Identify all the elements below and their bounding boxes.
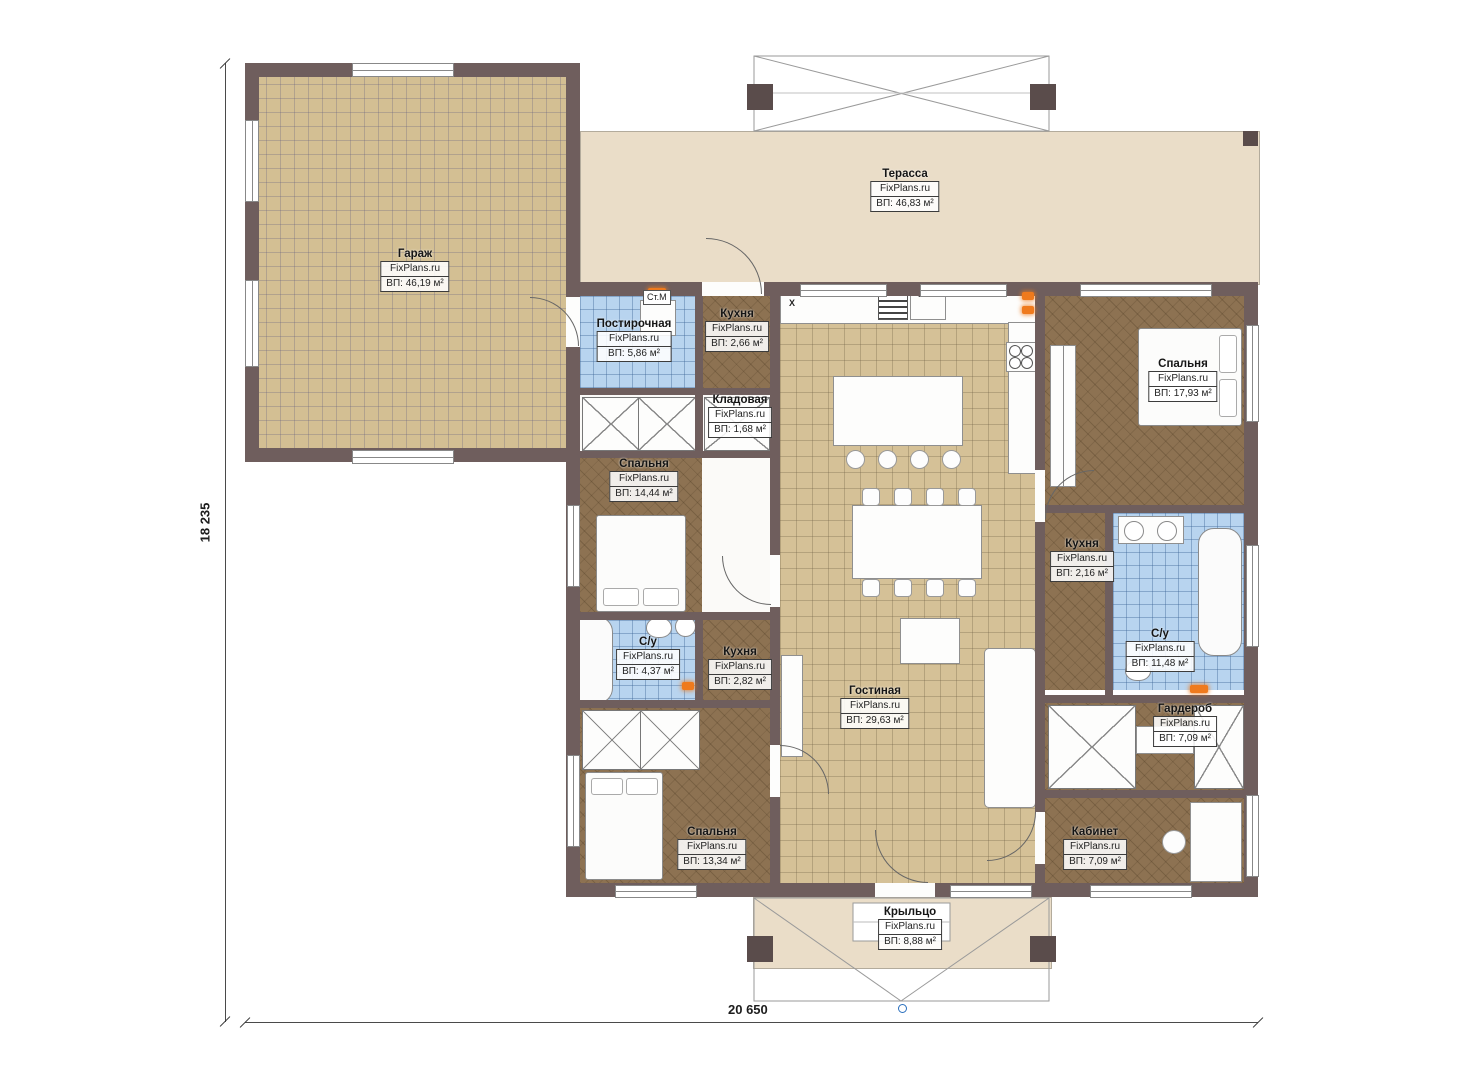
porch-column [1030,936,1056,962]
room-name: Постирочная [597,318,672,330]
room-watermark: FixPlans.ru [1153,716,1217,732]
dining-chair [926,579,944,597]
room-area: ВП: 2,16 м² [1050,567,1114,582]
dining-chair [958,488,976,506]
room-name: Гардероб [1153,703,1217,715]
bedroom2-wardrobe [1050,345,1076,487]
bar-stool [942,450,961,469]
room-watermark: FixPlans.ru [1148,371,1217,387]
room-area: ВП: 7,09 м² [1063,855,1127,870]
room-name: Спальня [609,458,678,470]
dining-chair [894,579,912,597]
pillow [1219,379,1237,417]
room-name: Кабинет [1063,826,1127,838]
dim-node [898,1004,907,1013]
vent-tag: X [786,297,798,310]
room-label-storage: Кладовая FixPlans.ru ВП: 1,68 м² [708,394,772,438]
dimension-height-label: 18 235 [197,503,212,543]
coffee-table [900,618,960,664]
door-gap [1035,470,1045,522]
bed-bedroom1 [596,515,686,612]
dining-chair [862,579,880,597]
room-label-bath1: С/у FixPlans.ru ВП: 4,37 м² [616,636,680,680]
garage-window-left [245,280,259,367]
kitchen-sink [910,293,946,320]
basin-bowl [1157,521,1177,541]
dining-chair [958,579,976,597]
dining-chair [894,488,912,506]
wall-right-divider [1035,296,1045,883]
room-label-kitchen-small: Кухня FixPlans.ru ВП: 2,82 м² [708,646,772,690]
toilet1 [646,617,672,638]
door-gap [770,745,780,797]
room-area: ВП: 46,83 м² [870,197,939,212]
window [615,885,697,898]
tv-stand [781,655,803,757]
pillow [603,588,639,606]
wall-wardrobe-office [1045,790,1244,798]
window [1246,325,1259,422]
room-name: Кладовая [708,394,772,406]
dining-chair [862,488,880,506]
wall-laundry-pantry [695,296,703,458]
room-label-office: Кабинет FixPlans.ru ВП: 7,09 м² [1063,826,1127,870]
room-label-bedroom1: Спальня FixPlans.ru ВП: 14,44 м² [609,458,678,502]
room-label-porch: Крыльцо FixPlans.ru ВП: 8,88 м² [878,906,942,950]
room-name: Кухня [708,646,772,658]
garage-wall-right [566,63,580,462]
wardrobe-unit [1048,705,1136,789]
porch-door-gap [875,883,935,897]
room-area: ВП: 11,48 м² [1126,657,1195,672]
pillow [1219,335,1237,373]
dimension-line-horizontal [245,1022,1258,1023]
room-label-bedroom2: Спальня FixPlans.ru ВП: 17,93 м² [1148,358,1217,402]
room-name: Терасса [870,168,939,180]
room-label-garage: Гараж FixPlans.ru ВП: 46,19 м² [380,248,449,292]
washing-machine-tag: Ст.М [643,290,671,305]
room-watermark: FixPlans.ru [708,407,772,423]
window [1090,885,1192,898]
window [1246,795,1259,877]
window [800,284,887,297]
radiator [1190,685,1208,693]
room-watermark: FixPlans.ru [1050,551,1114,567]
dimension-line-vertical [225,63,226,1022]
room-area: ВП: 46,19 м² [380,277,449,292]
kitchen-island [833,376,963,446]
room-label-terrace: Терасса FixPlans.ru ВП: 46,83 м² [870,168,939,212]
garage-window-left [245,120,259,202]
room-name: Спальня [1148,358,1217,370]
room-area: ВП: 4,37 м² [616,665,680,680]
room-label-bath2: С/у FixPlans.ru ВП: 11,48 м² [1126,628,1195,672]
room-area: ВП: 17,93 м² [1148,387,1217,402]
terrace-column [1030,84,1056,110]
terrace-corner-column [1243,131,1258,146]
pillow [626,778,658,795]
pillow [591,778,623,795]
room-watermark: FixPlans.ru [677,839,746,855]
dishwasher [878,293,908,320]
room-watermark: FixPlans.ru [609,471,678,487]
room-area: ВП: 2,82 м² [708,675,772,690]
room-label-bedroom3: Спальня FixPlans.ru ВП: 13,34 м² [677,826,746,870]
room-watermark: FixPlans.ru [878,919,942,935]
wall-bath-kitchen3 [695,620,703,708]
bed-bedroom3 [585,772,663,880]
bedroom3-wardrobe [640,710,700,770]
room-area: ВП: 2,66 м² [705,337,769,352]
room-watermark: FixPlans.ru [870,181,939,197]
room-area: ВП: 8,88 м² [878,935,942,950]
room-label-kitchen-right: Кухня FixPlans.ru ВП: 2,16 м² [1050,538,1114,582]
room-watermark: FixPlans.ru [1126,641,1195,657]
dining-chair [926,488,944,506]
bedroom3-wardrobe [582,710,642,770]
hall-wardrobe [638,397,696,451]
garage-window-bottom [352,450,454,464]
dimension-width-label: 20 650 [728,1002,768,1017]
room-watermark: FixPlans.ru [380,261,449,277]
wall-bedroom1-bath [580,612,770,620]
room-area: ВП: 13,34 м² [677,855,746,870]
room-label-wardrobe: Гардероб FixPlans.ru ВП: 7,09 м² [1153,703,1217,747]
door-gap [770,555,780,607]
room-watermark: FixPlans.ru [1063,839,1127,855]
dining-table [852,505,982,579]
room-watermark: FixPlans.ru [597,331,672,347]
radiator [682,682,694,690]
room-watermark: FixPlans.ru [705,321,769,337]
room-name: Крыльцо [878,906,942,918]
window [1246,545,1259,647]
floor-plan-canvas: Ст.М X Гараж FixPlans.ru ВП: 46,19 м² Те… [0,0,1474,1080]
room-watermark: FixPlans.ru [616,649,680,665]
room-label-living: Гостиная FixPlans.ru ВП: 29,63 м² [840,685,909,729]
room-name: Кухня [705,308,769,320]
room-watermark: FixPlans.ru [708,659,772,675]
hall-wardrobe [582,397,640,451]
burner-icon [1009,345,1021,357]
room-area: ВП: 29,63 м² [840,714,909,729]
burner-icon [1021,345,1033,357]
room-name: С/у [616,636,680,648]
radiator [1022,292,1034,300]
room-watermark: FixPlans.ru [840,698,909,714]
terrace-canopy-roof [753,55,1050,132]
room-name: С/у [1126,628,1195,640]
pillow [643,588,679,606]
double-washbasin [1118,516,1184,544]
bar-stool [910,450,929,469]
office-chair [1162,830,1186,854]
garage-window-top [352,63,454,77]
burner-icon [1009,357,1021,369]
room-name: Кухня [1050,538,1114,550]
bar-stool [846,450,865,469]
wall-hall-bottom [580,451,770,458]
bathtub2 [1198,528,1242,656]
burner-icon [1021,357,1033,369]
door-gap [1035,812,1045,864]
room-name: Гостиная [840,685,909,697]
wall-bath-bedroom3 [580,700,770,708]
radiator [1022,306,1034,314]
office-desk [1190,802,1242,882]
sofa [984,648,1036,808]
room-area: ВП: 5,86 м² [597,347,672,362]
window [950,885,1032,898]
wall-bath2-bottom [1045,695,1244,703]
bar-stool [878,450,897,469]
room-name: Спальня [677,826,746,838]
terrace-column [747,84,773,110]
window [567,755,580,847]
room-name: Гараж [380,248,449,260]
room-area: ВП: 14,44 м² [609,487,678,502]
window [920,284,1007,297]
porch-column [747,936,773,962]
window [1080,284,1212,297]
stove [1006,342,1036,372]
room-area: ВП: 1,68 м² [708,423,772,438]
room-area: ВП: 7,09 м² [1153,732,1217,747]
window [567,505,580,587]
room-label-laundry: Постирочная FixPlans.ru ВП: 5,86 м² [597,318,672,362]
basin-bowl [1124,521,1144,541]
room-label-kitchen-top: Кухня FixPlans.ru ВП: 2,66 м² [705,308,769,352]
